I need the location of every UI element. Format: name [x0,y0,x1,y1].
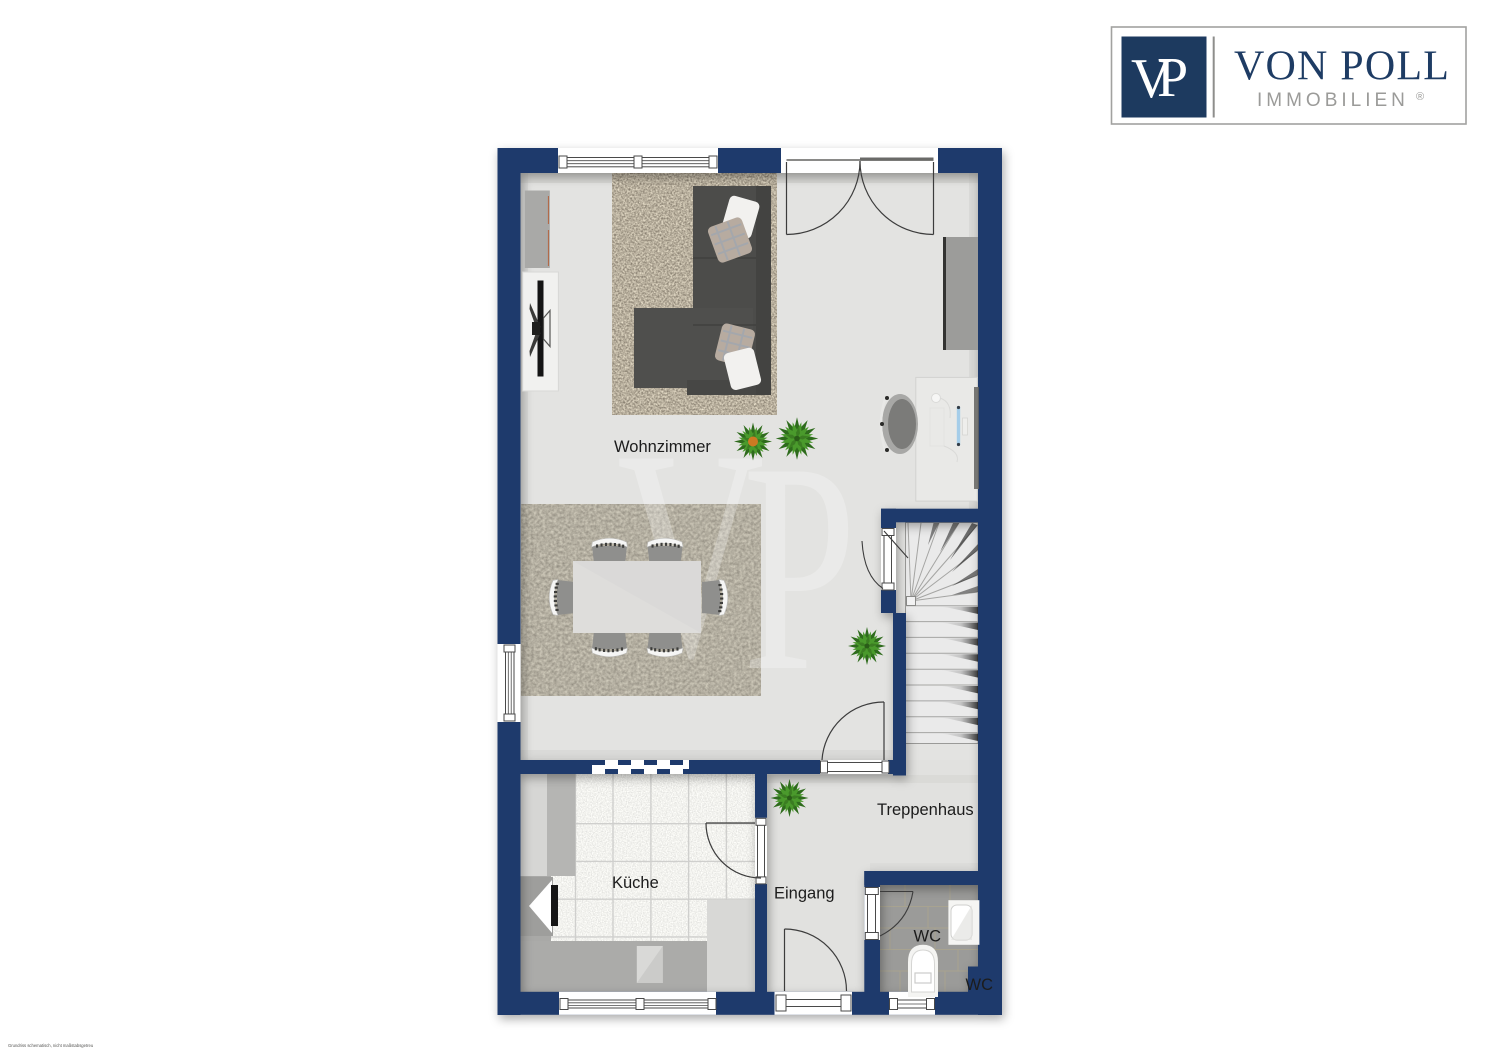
svg-text:Küche: Küche [612,874,659,892]
svg-text:VON POLL: VON POLL [1234,44,1450,90]
svg-text:Eingang: Eingang [774,885,835,903]
svg-text:IMMOBILIEN: IMMOBILIEN [1257,90,1409,111]
svg-text:Wohnzimmer: Wohnzimmer [614,438,711,456]
svg-text:Treppenhaus: Treppenhaus [877,801,974,819]
svg-text:WC: WC [914,928,942,946]
svg-text:P: P [1157,47,1188,109]
svg-text:Grundriss schematisch, nicht m: Grundriss schematisch, nicht maßstabsget… [8,1043,94,1048]
svg-text:®: ® [1416,91,1424,103]
svg-text:WC: WC [966,976,994,994]
